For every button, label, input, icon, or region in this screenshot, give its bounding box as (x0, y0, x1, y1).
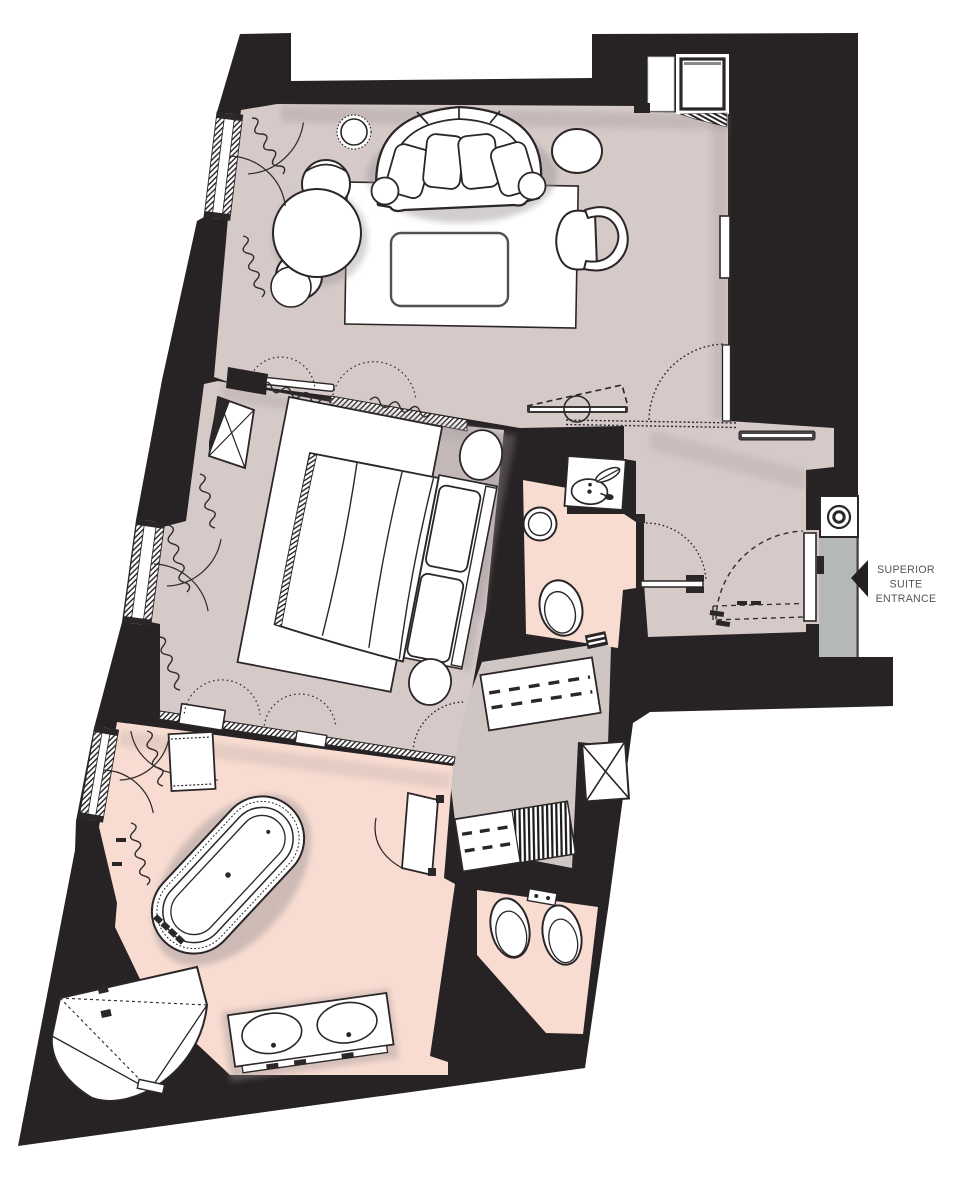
svg-text:SUPERIOR: SUPERIOR (877, 564, 935, 576)
svg-text:ENTRANCE: ENTRANCE (876, 593, 937, 605)
svg-text:SUITE: SUITE (890, 579, 923, 591)
